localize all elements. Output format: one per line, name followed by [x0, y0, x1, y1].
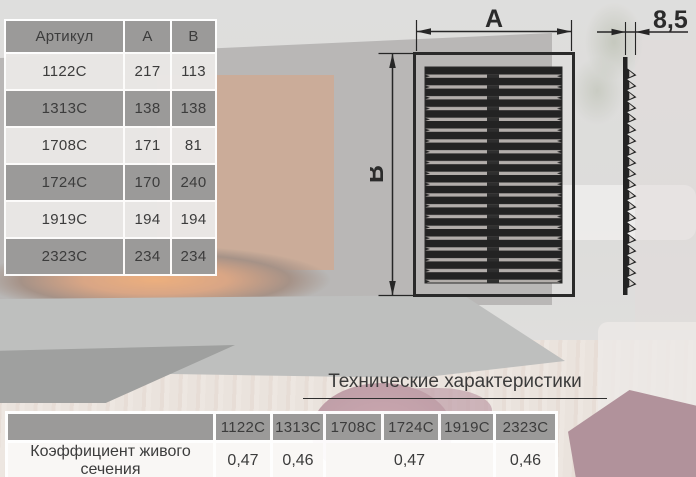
spec-sheet: Артикул А В 1122С 217 113 1313С 138 138 … [0, 0, 696, 477]
article-size-table: Артикул А В 1122С 217 113 1313С 138 138 … [4, 19, 217, 276]
tech-row-label: Коэффициент живого сечения [8, 443, 213, 477]
dim-b-value: 240 [172, 165, 215, 200]
tech-characteristics-table: 1122С 1313С 1708С 1724С 1919С 2323С Коэф… [5, 411, 558, 477]
coefficient-value: 0,46 [496, 443, 555, 477]
table-header-row: Артикул А В [6, 21, 215, 52]
header-dim-b: В [172, 21, 215, 52]
coefficient-value: 0,47 [216, 443, 270, 477]
header-article: Артикул [6, 21, 123, 52]
tech-col-header: 1122С [216, 414, 270, 440]
arrow-left-icon [417, 28, 432, 35]
article-code: 1724С [6, 165, 123, 200]
dim-a-value: 217 [125, 54, 170, 89]
table-row: 1724С 170 240 [6, 165, 215, 200]
table-row: 1919С 194 194 [6, 202, 215, 237]
arrow-down-icon [389, 281, 396, 296]
dim-a-value: 171 [125, 128, 170, 163]
table-row: 1708С 171 81 [6, 128, 215, 163]
article-code: 1122С [6, 54, 123, 89]
coefficient-value-merged: 0,47 [326, 443, 493, 477]
grille-technical-drawing: А В 8,5 [370, 0, 696, 320]
tech-corner-cell [8, 414, 213, 440]
article-code: 1708С [6, 128, 123, 163]
tech-section-title: Технические характеристики [303, 371, 607, 399]
table-row: 1122С 217 113 [6, 54, 215, 89]
dim-a-value: 138 [125, 91, 170, 126]
tech-col-header: 1313С [273, 414, 323, 440]
dimension-b-label: В [370, 165, 389, 183]
header-dim-a: А [125, 21, 170, 52]
tech-col-header: 1708С [326, 414, 381, 440]
arrow-left-icon [636, 29, 650, 35]
table-row: 2323С 234 234 [6, 239, 215, 274]
grille-slats [425, 67, 562, 283]
article-code: 1313С [6, 91, 123, 126]
tech-col-header: 1919С [441, 414, 493, 440]
dim-a-value: 194 [125, 202, 170, 237]
tech-value-row: Коэффициент живого сечения 0,47 0,46 0,4… [8, 443, 555, 477]
tech-header-row: 1122С 1313С 1708С 1724С 1919С 2323С [8, 414, 555, 440]
dim-b-value: 113 [172, 54, 215, 89]
dimension-a-label: А [485, 5, 503, 33]
article-code: 2323С [6, 239, 123, 274]
dim-a-value: 234 [125, 239, 170, 274]
table-row: 1313С 138 138 [6, 91, 215, 126]
dim-b-value: 138 [172, 91, 215, 126]
grille-side-louvers [628, 68, 637, 288]
arrow-up-icon [389, 54, 396, 69]
article-code: 1919С [6, 202, 123, 237]
dim-a-value: 170 [125, 165, 170, 200]
arrow-right-icon [612, 29, 626, 35]
dim-b-value: 194 [172, 202, 215, 237]
tech-col-header: 1724С [384, 414, 438, 440]
arrow-right-icon [557, 28, 572, 35]
dimension-depth-label: 8,5 [653, 6, 688, 34]
grille-side-flange [623, 57, 628, 295]
dim-b-value: 81 [172, 128, 215, 163]
coefficient-value: 0,46 [273, 443, 323, 477]
tech-col-header: 2323С [496, 414, 555, 440]
dim-b-value: 234 [172, 239, 215, 274]
